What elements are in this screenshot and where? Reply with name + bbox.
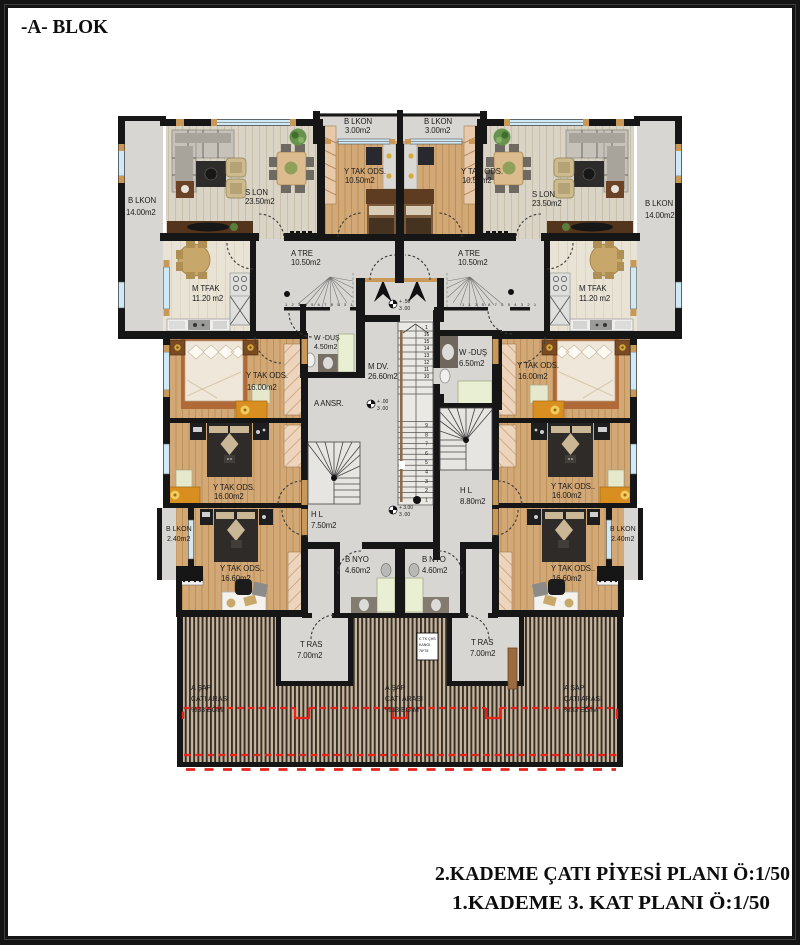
svg-text:A ŞAP: A ŞAP [385, 685, 406, 692]
svg-text:%33 EĞİM: %33 EĞİM [385, 705, 419, 714]
svg-text:T RAS: T RAS [300, 640, 322, 649]
svg-text:9: 9 [425, 423, 428, 429]
svg-text:6.50m2: 6.50m2 [459, 359, 484, 368]
svg-text:A ŞAP: A ŞAP [564, 685, 585, 692]
svg-text:W -DUŞ: W -DUŞ [459, 348, 487, 357]
svg-text:14.00m2: 14.00m2 [645, 211, 675, 220]
svg-text:-A- BLOK: -A- BLOK [21, 16, 108, 38]
svg-text:16: 16 [424, 332, 430, 338]
svg-text:S LON: S LON [532, 190, 555, 199]
svg-text:M DV.: M DV. [368, 362, 388, 371]
svg-text:%33 EĞİM: %33 EĞİM [191, 705, 225, 714]
svg-text:4.60m2: 4.60m2 [345, 566, 370, 575]
svg-text:2.40m2: 2.40m2 [611, 536, 634, 543]
svg-text:1 1 3 5 8 7 6 5 4 3 2 1: 1 1 3 5 8 7 6 5 4 3 2 1 [462, 302, 538, 307]
svg-text:3 .00: 3 .00 [399, 306, 410, 312]
svg-text:B LKON: B LKON [645, 199, 673, 208]
svg-text:A ANSR.: A ANSR. [314, 399, 344, 408]
svg-text:+ 3.00: + 3.00 [399, 505, 413, 511]
svg-text:10: 10 [424, 374, 430, 380]
svg-text:M TFAK: M TFAK [192, 284, 220, 293]
svg-text:16.00m2: 16.00m2 [518, 372, 548, 381]
svg-text:B LKON: B LKON [610, 526, 636, 533]
svg-text:%33 EĞİM: %33 EĞİM [564, 705, 598, 714]
svg-text:16.00m2: 16.00m2 [247, 383, 277, 392]
svg-text:ÇATI ARASI: ÇATI ARASI [191, 696, 229, 703]
svg-text:Y TAK ODS..: Y TAK ODS.. [551, 564, 595, 573]
svg-text:16.60m2: 16.60m2 [221, 574, 251, 583]
svg-text:C TK ÇHS: C TK ÇHS [419, 637, 436, 641]
svg-text:10.50m2: 10.50m2 [458, 258, 488, 267]
svg-text:8.80m2: 8.80m2 [460, 497, 485, 506]
svg-text:M TFAK: M TFAK [579, 284, 607, 293]
svg-text:2.40m2: 2.40m2 [167, 536, 190, 543]
svg-text:4.60m2: 4.60m2 [422, 566, 447, 575]
svg-text:16.00m2: 16.00m2 [552, 491, 582, 500]
svg-text:B NYO: B NYO [422, 555, 446, 564]
svg-text:H L: H L [311, 510, 324, 519]
svg-text:4: 4 [425, 470, 428, 476]
svg-text:Y TAK ODS..: Y TAK ODS.. [551, 482, 595, 491]
svg-text:12: 12 [424, 360, 430, 366]
svg-text:5: 5 [425, 460, 428, 466]
svg-text:3 .00: 3 .00 [377, 406, 388, 412]
svg-text:A ŞAP: A ŞAP [191, 685, 212, 692]
svg-text:2.KADEME ÇATI PİYESİ PLANI: 2.KADEME ÇATI PİYESİ PLANI Ö:1/50 [435, 861, 790, 885]
svg-text:H L: H L [460, 486, 473, 495]
svg-text:11.20 m2: 11.20 m2 [192, 294, 223, 303]
svg-text:23.50m2: 23.50m2 [245, 197, 275, 206]
svg-text:23.50m2: 23.50m2 [532, 199, 562, 208]
svg-text:3.00m2: 3.00m2 [425, 126, 450, 135]
svg-text:ÇATI ARASI: ÇATI ARASI [385, 696, 423, 703]
svg-text:14: 14 [424, 346, 430, 352]
svg-text:3: 3 [425, 479, 428, 485]
svg-text:ÇATI ARASI: ÇATI ARASI [564, 696, 602, 703]
svg-text:B LKON: B LKON [128, 196, 156, 205]
svg-text:7.00m2: 7.00m2 [297, 651, 322, 660]
svg-text:13: 13 [424, 353, 430, 359]
svg-text:+ .50: + .50 [399, 299, 410, 305]
svg-text:A TRE: A TRE [458, 249, 480, 258]
svg-text:16.00m2: 16.00m2 [214, 492, 244, 501]
svg-text:10.50m2: 10.50m2 [462, 176, 492, 185]
svg-text:4.50m2: 4.50m2 [314, 344, 337, 351]
svg-text:1 2 3 4 5 6 7 8 5 3 1: 1 2 3 4 5 6 7 8 5 3 1 [285, 302, 354, 307]
svg-text:7: 7 [425, 442, 428, 448]
svg-text:W -DUŞ: W -DUŞ [314, 335, 340, 342]
svg-text:2: 2 [425, 488, 428, 494]
svg-text:6: 6 [425, 451, 428, 457]
svg-text:KANGI: KANGI [419, 643, 430, 647]
svg-text:14.00m2: 14.00m2 [126, 208, 156, 217]
svg-text:7.00m2: 7.00m2 [470, 649, 495, 658]
svg-text:B LKON: B LKON [166, 526, 192, 533]
svg-text:+ .00: + .00 [377, 399, 388, 405]
svg-text:3 .00: 3 .00 [399, 512, 410, 518]
svg-text:1: 1 [425, 325, 428, 331]
svg-text:8: 8 [425, 432, 428, 438]
svg-text:B LKON: B LKON [424, 117, 452, 126]
svg-text:Y TAK ODS.: Y TAK ODS. [246, 371, 288, 380]
svg-text:Y TAK ODS.: Y TAK ODS. [213, 483, 255, 492]
svg-text:A TRE: A TRE [291, 249, 313, 258]
svg-text:Y TAK ODS.: Y TAK ODS. [517, 361, 559, 370]
svg-text:15: 15 [424, 339, 430, 345]
svg-text:10.50m2: 10.50m2 [291, 258, 321, 267]
svg-text:11.20 m2: 11.20 m2 [579, 294, 610, 303]
svg-text:1.KADEME 3. KAT PLANI Ö:1: 1.KADEME 3. KAT PLANI Ö:1/50 [452, 891, 770, 914]
svg-text:B NYO: B NYO [345, 555, 369, 564]
svg-text:Y TAK ODS.: Y TAK ODS. [344, 167, 386, 176]
svg-text:T RAS: T RAS [471, 638, 493, 647]
svg-text:1: 1 [425, 497, 428, 503]
svg-text:Y TAK ODS.: Y TAK ODS. [461, 167, 503, 176]
svg-text:3.00m2: 3.00m2 [345, 126, 370, 135]
svg-text:7.50m2: 7.50m2 [311, 521, 336, 530]
svg-text:10.50m2: 10.50m2 [345, 176, 375, 185]
svg-text:B LKON: B LKON [344, 117, 372, 126]
svg-text:S LON: S LON [245, 188, 268, 197]
svg-text:11: 11 [424, 367, 429, 373]
svg-text:Y TAK ODS..: Y TAK ODS.. [220, 564, 264, 573]
svg-text:16.60m2: 16.60m2 [552, 574, 582, 583]
svg-text:26.60m2: 26.60m2 [368, 372, 398, 381]
svg-text:78*78: 78*78 [419, 649, 428, 653]
